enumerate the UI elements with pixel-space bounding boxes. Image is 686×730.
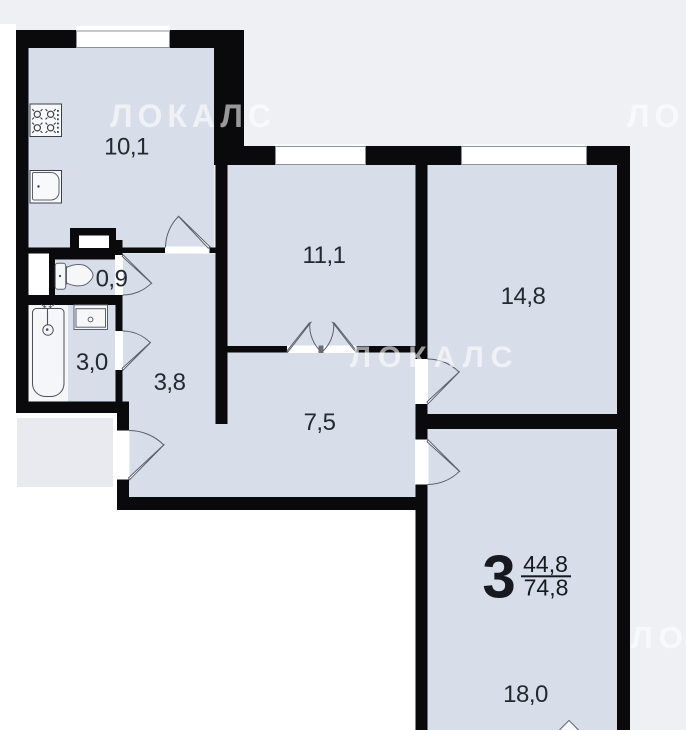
svg-text:3,0: 3,0 bbox=[76, 349, 108, 376]
svg-text:ЛОКАЛС: ЛОКАЛС bbox=[627, 98, 686, 134]
svg-text:11,1: 11,1 bbox=[303, 242, 346, 269]
svg-text:ЛОКАЛС: ЛОКАЛС bbox=[110, 98, 276, 134]
svg-text:3: 3 bbox=[482, 544, 515, 611]
svg-text:3,8: 3,8 bbox=[154, 369, 186, 396]
svg-text:44,8: 44,8 bbox=[523, 551, 568, 577]
svg-text:7,5: 7,5 bbox=[304, 409, 336, 436]
svg-text:10,1: 10,1 bbox=[104, 134, 149, 161]
svg-text:18,0: 18,0 bbox=[503, 681, 548, 708]
svg-text:ЛОКАЛС: ЛОКАЛС bbox=[631, 620, 686, 655]
svg-text:ЛОКАЛС: ЛОКАЛС bbox=[350, 341, 519, 374]
svg-text:0,9: 0,9 bbox=[96, 266, 128, 293]
svg-text:14,8: 14,8 bbox=[501, 283, 546, 310]
svg-text:74,8: 74,8 bbox=[524, 575, 569, 601]
